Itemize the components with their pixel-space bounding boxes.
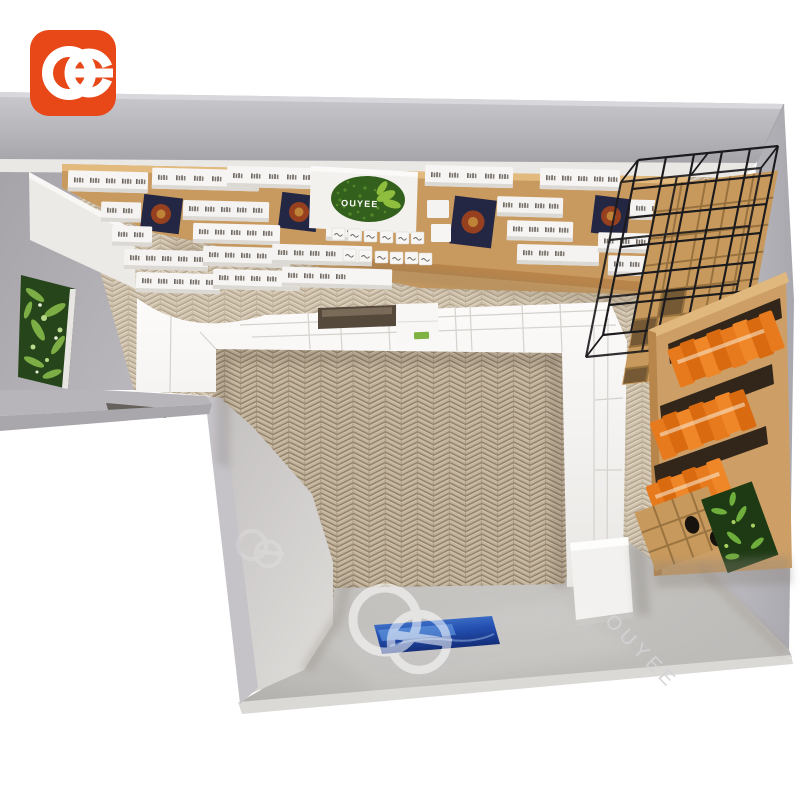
svg-text:OUYEE: OUYEE [341,198,379,209]
